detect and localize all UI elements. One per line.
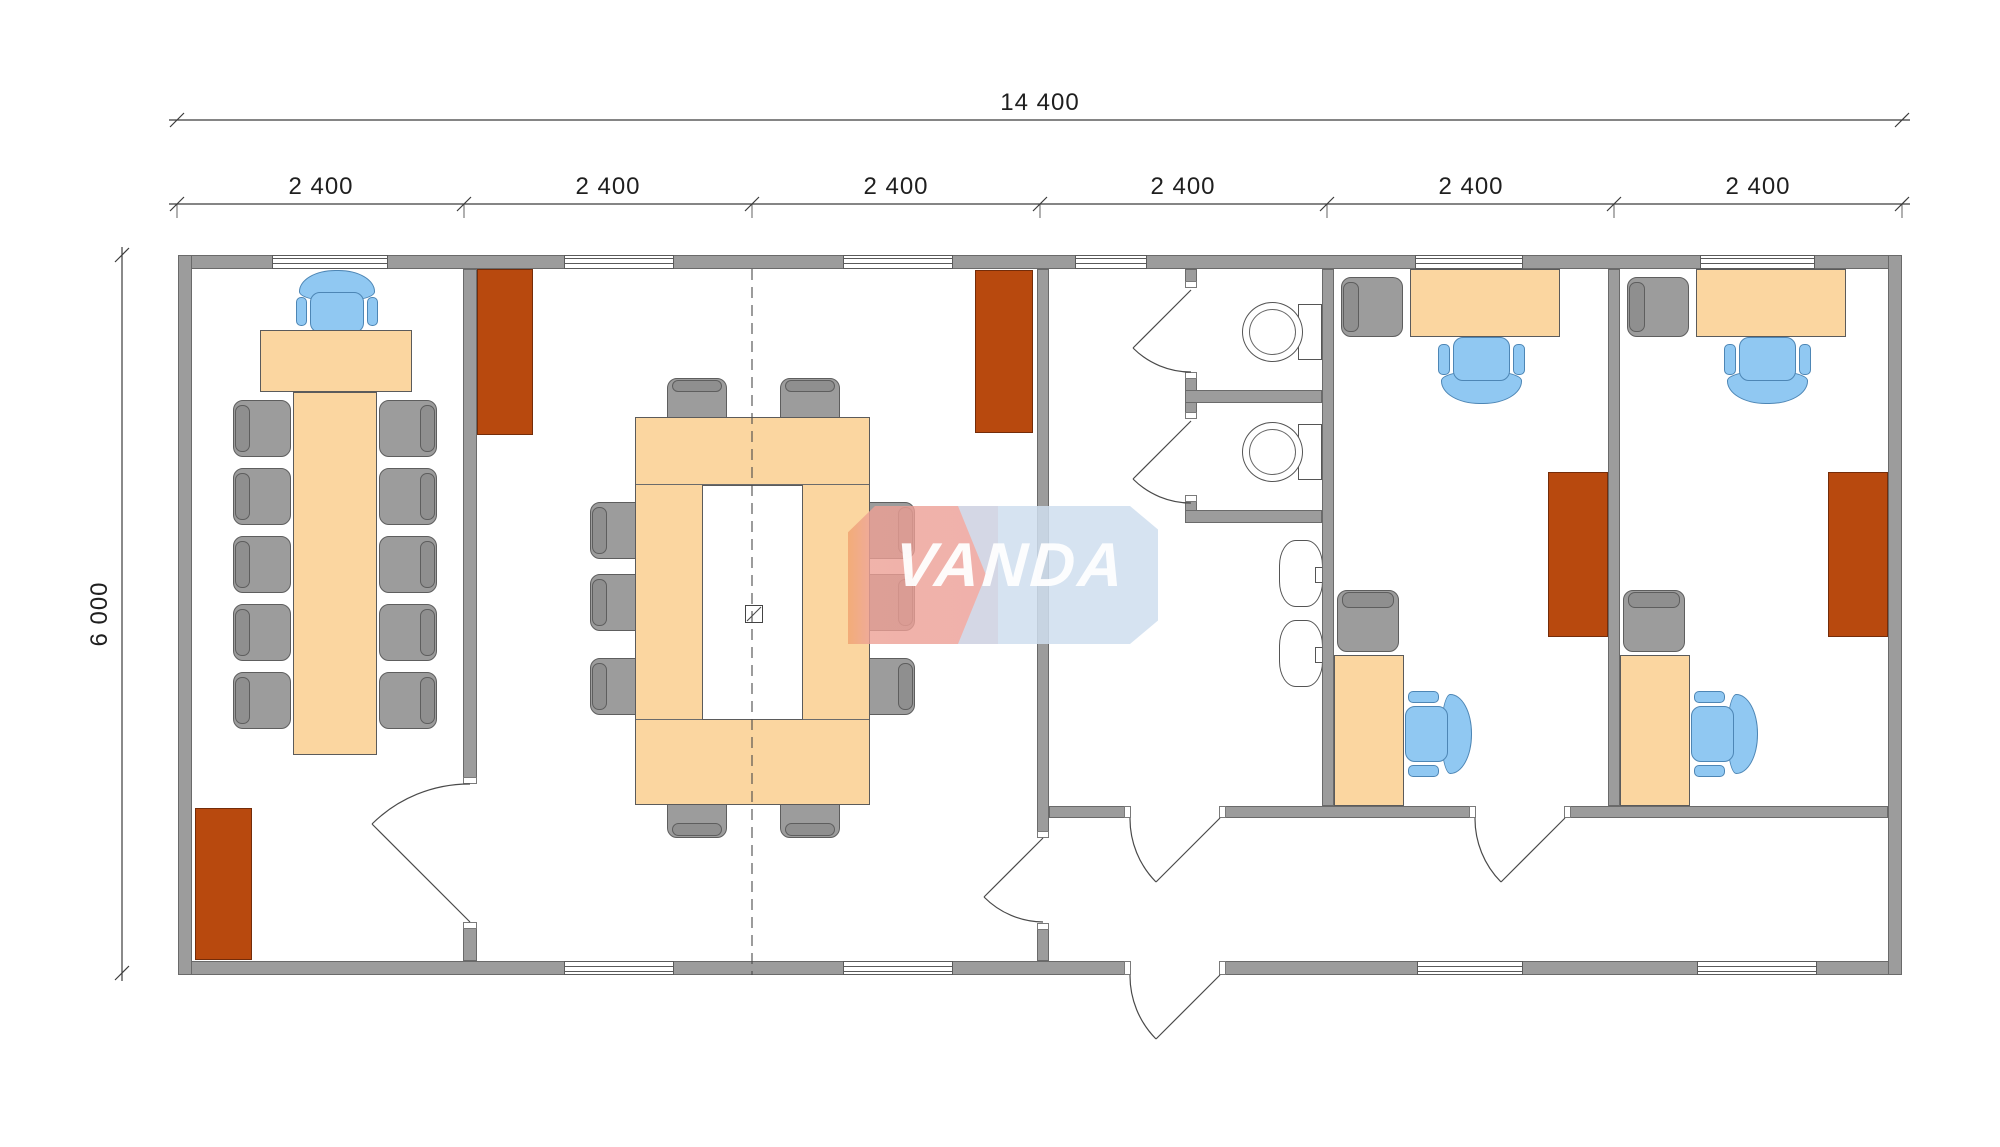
wall-office1-office2 xyxy=(1608,269,1620,806)
window xyxy=(1700,255,1815,269)
door-opening xyxy=(1130,961,1220,975)
sink-icon xyxy=(1279,540,1323,607)
door-jamb xyxy=(463,777,477,784)
office-chair-icon xyxy=(1724,336,1811,404)
desk xyxy=(293,392,377,755)
sink-icon xyxy=(1279,620,1323,687)
chair-icon xyxy=(379,604,437,661)
chair-icon xyxy=(1623,590,1685,652)
chair-icon xyxy=(233,604,291,661)
office-chair-icon xyxy=(296,270,378,334)
office-chair-icon xyxy=(1404,691,1472,777)
door-wc-lobby xyxy=(1130,818,1220,882)
door-opening xyxy=(1037,838,1049,923)
door-jamb xyxy=(1564,806,1571,818)
dim-module-6: 2 400 xyxy=(1725,173,1790,201)
dim-total-width: 14 400 xyxy=(1000,89,1079,117)
desk xyxy=(1620,655,1690,806)
desk xyxy=(1410,269,1560,337)
chair-icon xyxy=(379,536,437,593)
door-jamb xyxy=(1219,961,1226,975)
door-jamb xyxy=(1185,372,1197,379)
door-conference xyxy=(984,838,1043,922)
chair-icon xyxy=(233,400,291,457)
chair-icon xyxy=(233,536,291,593)
door-opening xyxy=(1185,288,1197,372)
chair-icon xyxy=(1337,590,1399,652)
door-opening xyxy=(1475,806,1565,818)
door-jamb xyxy=(463,922,477,929)
floor-plan-canvas: 14 400 2 400 2 400 2 400 2 400 2 400 2 4… xyxy=(0,0,2000,1147)
cabinet xyxy=(1828,472,1888,637)
desk xyxy=(1334,655,1404,806)
chair-icon xyxy=(379,468,437,525)
dim-height: 6 000 xyxy=(86,581,114,646)
door-wc-stall-2 xyxy=(1133,421,1191,503)
window xyxy=(1697,961,1817,975)
dim-module-3: 2 400 xyxy=(863,173,928,201)
chair-icon xyxy=(233,468,291,525)
dim-module-1: 2 400 xyxy=(288,173,353,201)
door-room1 xyxy=(372,784,470,922)
door-entrance xyxy=(1130,975,1220,1039)
window xyxy=(1075,255,1147,269)
office-chair-icon xyxy=(1438,336,1525,404)
chair-icon xyxy=(1627,277,1689,337)
wall-left xyxy=(178,255,192,975)
dim-module-4: 2 400 xyxy=(1150,173,1215,201)
window xyxy=(564,961,674,975)
door-opening xyxy=(463,784,477,922)
office-chair-icon xyxy=(1690,691,1758,777)
window xyxy=(1417,961,1523,975)
chair-icon xyxy=(1341,277,1403,337)
toilet-icon xyxy=(1242,422,1322,482)
wall-wc-office1 xyxy=(1322,269,1334,806)
window xyxy=(1415,255,1523,269)
door-opening xyxy=(1130,806,1220,818)
door-office1 xyxy=(1475,818,1565,882)
door-jamb xyxy=(1185,412,1197,419)
door-jamb xyxy=(1124,806,1131,818)
dim-module-5: 2 400 xyxy=(1438,173,1503,201)
chair-icon xyxy=(233,672,291,729)
window xyxy=(843,255,953,269)
desk xyxy=(1696,269,1846,337)
cabinet xyxy=(477,269,533,435)
floor-box-icon xyxy=(745,605,763,623)
door-jamb xyxy=(1219,806,1226,818)
window xyxy=(272,255,388,269)
window xyxy=(564,255,674,269)
door-jamb xyxy=(1037,923,1049,930)
cabinet xyxy=(1548,472,1608,637)
wall-wc-partition-1 xyxy=(1185,390,1322,403)
cabinet xyxy=(195,808,252,960)
conference-table-hollow xyxy=(702,485,803,720)
door-jamb xyxy=(1185,281,1197,288)
door-jamb xyxy=(1124,961,1131,975)
chair-icon xyxy=(379,672,437,729)
chair-icon xyxy=(379,400,437,457)
cabinet xyxy=(975,270,1033,433)
door-opening xyxy=(1185,419,1197,495)
wall-wc-partition-2 xyxy=(1185,510,1322,523)
watermark-banner-blue xyxy=(958,506,1158,644)
wall-bottom xyxy=(178,961,1902,975)
door-jamb xyxy=(1185,495,1197,502)
door-jamb xyxy=(1469,806,1476,818)
door-jamb xyxy=(1037,831,1049,838)
desk xyxy=(260,330,412,392)
wall-right xyxy=(1888,255,1902,975)
door-wc-stall-1 xyxy=(1133,290,1191,372)
dim-module-2: 2 400 xyxy=(575,173,640,201)
window xyxy=(843,961,953,975)
wall-top xyxy=(178,255,1902,269)
toilet-icon xyxy=(1242,302,1322,362)
